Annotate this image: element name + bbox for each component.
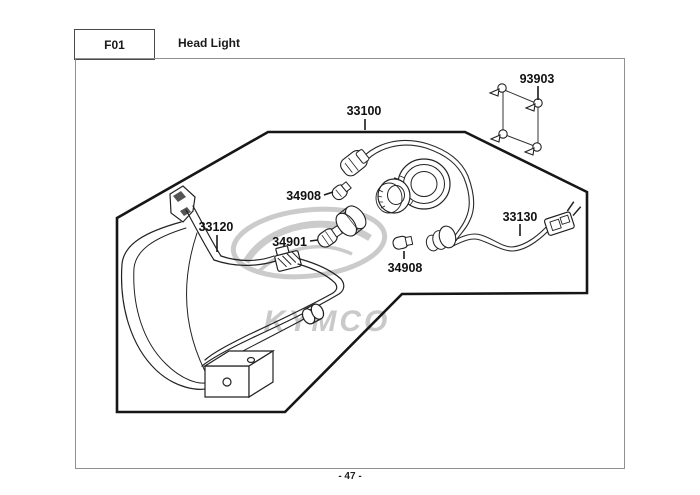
kymco-watermark-text: KYMCO xyxy=(264,305,391,338)
part-label-33120: 33120 xyxy=(199,220,234,234)
part-label-34901: 34901 xyxy=(272,235,307,249)
part-label-33130: 33130 xyxy=(503,210,538,224)
bulb-34908-upper-drawing xyxy=(330,180,353,202)
part-label-34908-upper: 34908 xyxy=(286,189,321,203)
part-label-33100: 33100 xyxy=(347,104,382,118)
retaining-ring-drawing xyxy=(376,179,410,213)
page-number: - 47 - xyxy=(76,471,624,482)
kymco-watermark-logo xyxy=(230,202,388,284)
screw-set-drawing xyxy=(490,84,542,155)
bulb-plug-drawing xyxy=(423,224,458,253)
part-label-34908-lower: 34908 xyxy=(388,261,423,275)
exploded-diagram: KYMCO xyxy=(0,0,700,495)
catalog-page: F01 Head Light KYMCO xyxy=(0,0,700,495)
bulb-34908-lower-drawing xyxy=(392,234,413,250)
wire-socket-drawing xyxy=(338,146,372,178)
headlight-housing-drawing xyxy=(122,186,344,397)
part-label-93903: 93903 xyxy=(520,72,555,86)
connector-33130-drawing xyxy=(541,200,586,236)
